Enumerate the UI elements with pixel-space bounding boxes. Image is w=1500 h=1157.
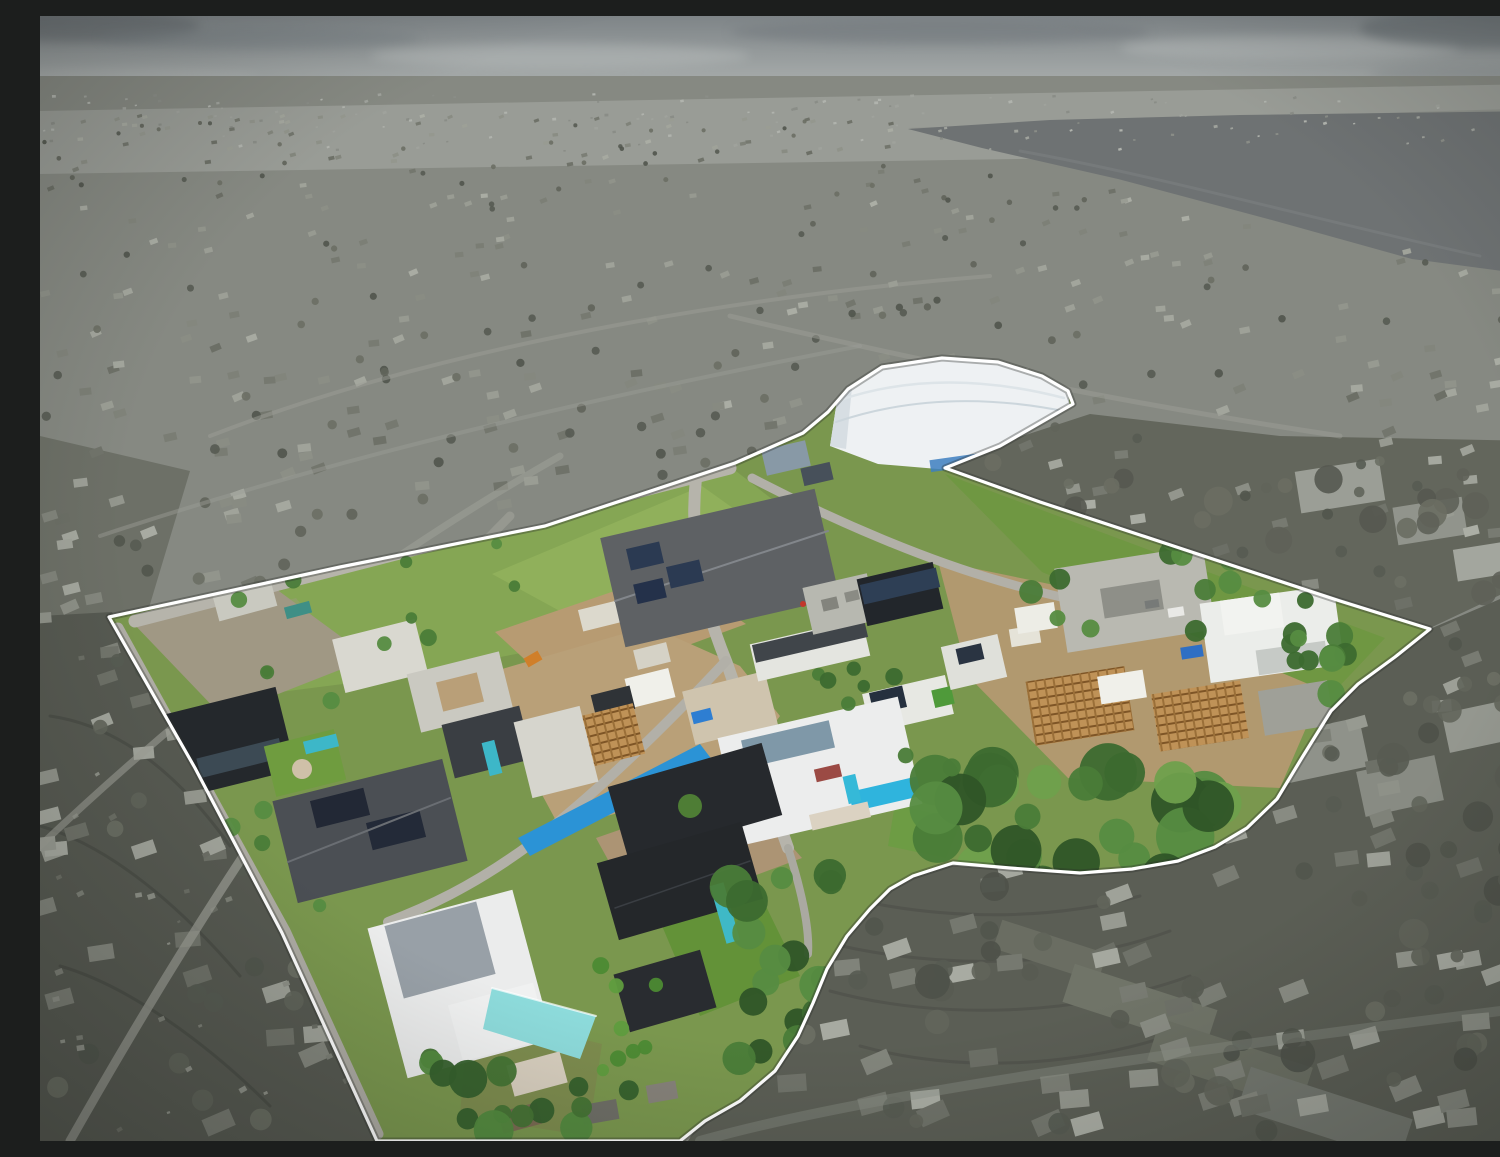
- land-parcel-marketing-image: [40, 16, 1500, 1141]
- vignette-overlay: [40, 16, 1500, 1141]
- aerial-drone-photo: [40, 16, 1500, 1141]
